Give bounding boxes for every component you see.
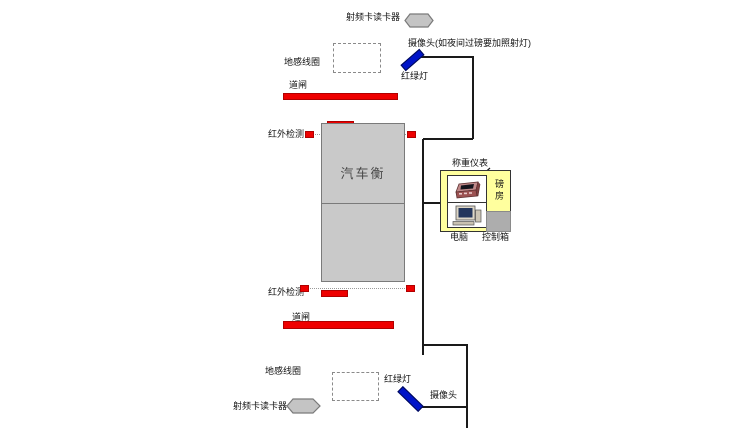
ground-coil-top-label: 地感线圈 bbox=[284, 57, 320, 67]
rfid-reader-bottom-icon bbox=[286, 398, 321, 414]
barrier-top-label: 道闸 bbox=[289, 80, 307, 90]
scale-house-label: 磅房 bbox=[493, 179, 506, 203]
barrier-bottom-bar bbox=[283, 321, 394, 329]
traffic-light-top-label: 红绿灯 bbox=[401, 71, 428, 81]
camera-bottom-label: 摄像头 bbox=[430, 390, 457, 400]
ground-coil-top-icon bbox=[333, 43, 381, 73]
infrared-top-label: 红外检测 bbox=[268, 129, 304, 139]
wire-bottom-camera-horizontal bbox=[419, 406, 468, 408]
wire-upper-return-horizontal bbox=[423, 138, 473, 140]
equipment-box-divider bbox=[448, 202, 486, 203]
equipment-box bbox=[447, 175, 487, 228]
control-box-icon bbox=[486, 211, 511, 232]
ground-coil-bottom-label: 地感线圈 bbox=[265, 366, 301, 376]
wire-lower-horizontal bbox=[423, 344, 468, 346]
traffic-light-bottom-label: 红绿灯 bbox=[384, 374, 411, 384]
wire-top-horizontal bbox=[421, 56, 474, 58]
wire-main-vertical bbox=[422, 139, 424, 355]
control-box-label: 控制箱 bbox=[482, 232, 509, 242]
traffic-light-bottom-icon bbox=[397, 386, 423, 412]
traffic-light-top-icon bbox=[400, 49, 424, 71]
rfid-reader-top-label: 射频卡读卡器 bbox=[346, 12, 400, 22]
weighing-indicator-image bbox=[452, 179, 482, 201]
infrared-top-sensor-right bbox=[407, 131, 416, 138]
truck-scale-label: 汽车衡 bbox=[322, 163, 404, 182]
weighbridge-system-diagram: 射频卡读卡器 摄像头(如夜间过磅要加照射灯) 红绿灯 地感线圈 道闸 红外检测 … bbox=[0, 0, 746, 428]
truck-scale-platform: 汽车衡 bbox=[321, 123, 405, 282]
infrared-top-sensor-left bbox=[305, 131, 314, 138]
infrared-bottom-label: 红外检测 bbox=[268, 287, 304, 297]
rfid-reader-top-icon bbox=[404, 13, 434, 28]
computer-label: 电脑 bbox=[450, 232, 468, 242]
infrared-bottom-sensor-right bbox=[406, 285, 415, 292]
ground-coil-bottom-icon bbox=[332, 372, 379, 401]
wire-lower-vertical bbox=[466, 345, 468, 428]
infrared-bottom-sensor-left bbox=[300, 285, 309, 292]
rfid-reader-bottom-label: 射频卡读卡器 bbox=[233, 401, 287, 411]
infrared-bottom-emitter-bar bbox=[321, 290, 348, 297]
computer-image bbox=[450, 205, 484, 227]
camera-top-label: 摄像头(如夜间过磅要加照射灯) bbox=[408, 38, 531, 48]
wire-top-vertical bbox=[472, 57, 474, 139]
infrared-bottom-beam bbox=[305, 288, 411, 289]
scale-house-box: 磅房 bbox=[440, 170, 511, 232]
scale-section-divider bbox=[322, 203, 404, 204]
barrier-top-bar bbox=[283, 93, 398, 100]
